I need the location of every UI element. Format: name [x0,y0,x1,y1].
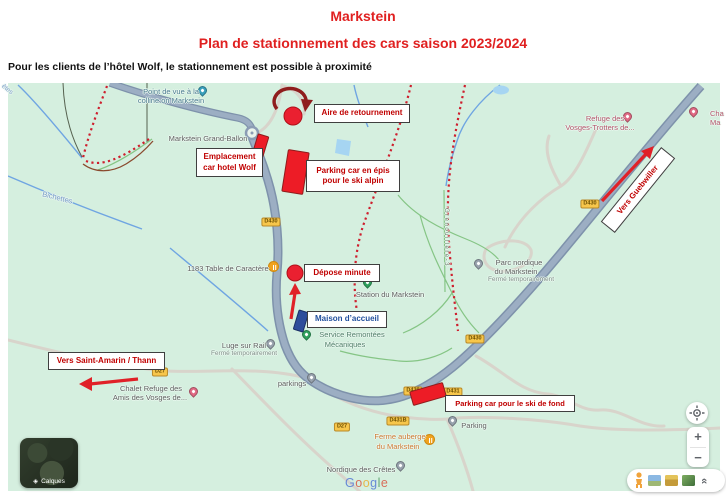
poi-label-chalet-refuge[interactable]: Chalet Refuge des [120,384,182,393]
road-badge-d430: D430 [261,218,280,227]
my-location-button[interactable] [686,402,708,424]
poi-label-refuge-vosges[interactable]: Vosges-Trotters de... [565,123,634,132]
google-watermark: Google [345,476,388,490]
annotation-parking-ski-fond: Parking car pour le ski de fond [445,395,575,412]
poi-label-nordique-cretes[interactable]: Nordique des Crêtes [327,465,396,474]
restaurant-pin-icon[interactable] [268,261,279,272]
poi-label-ferme-auberge[interactable]: Ferme auberge [374,432,425,441]
annotation-parking-epis: Parking car en épis pour le ski alpin [306,160,400,192]
area-label-parkings: parkings [278,379,306,388]
collapse-chevron-icon[interactable]: « [698,477,710,483]
page-title: Markstein [0,8,726,24]
road-badge-d431b: D431B [386,417,409,426]
poi-label-remontees[interactable]: Service Remontées [319,330,384,339]
lift-label-grenouillere: Grenouillère-3 [443,208,449,267]
photo-thumbnail[interactable] [665,475,678,486]
annotation-maison-accueil: Maison d’accueil [307,311,387,328]
poi-label-chalet-edge[interactable]: Cha [710,109,724,118]
annotation-aire-de-retournement: Aire de retournement [314,104,410,123]
layers-icon: ◈ [33,477,38,485]
pond [493,86,509,95]
zoom-control: + − [687,427,709,467]
poi-label-point-de-vue[interactable]: colline on Markstein [138,96,204,105]
poi-label-station-du-markstein[interactable]: Station du Markstein [356,290,424,299]
poi-label-parc-nordique[interactable]: du Markstein [495,267,538,276]
ferme-auberge-pin-icon[interactable] [424,434,435,445]
poi-label-chalet-refuge[interactable]: Amis des Vosges de... [113,393,187,402]
poi-label-parking[interactable]: Parking [461,421,486,430]
poi-label-table-de-caractere[interactable]: 1183 Table de Caractère [187,264,268,273]
roundabout [246,127,258,139]
pegman-icon[interactable] [634,472,644,489]
annotation-emplacement-hotel-wolf: Emplacement car hotel Wolf [196,148,263,177]
road-badge-d430: D430 [403,387,422,396]
road-badge-d430: D430 [580,200,599,209]
map-vector-layer [8,83,720,491]
photo-thumbnail[interactable] [648,475,661,486]
page-subtitle: Plan de stationnement des cars saison 20… [0,35,726,51]
poi-label-chalet-edge[interactable]: Ma [710,118,720,127]
poi-status-parc-nordique: Fermé temporairement [488,276,554,283]
poi-label-remontees[interactable]: Mécaniques [325,340,365,349]
streetview-photos-bar: « [627,469,725,492]
annotation-vers-saint-amarin: Vers Saint-Amarin / Thann [48,352,165,370]
poi-label-point-de-vue[interactable]: Point de vue à la [143,87,199,96]
road-badge-d430: D430 [465,335,484,344]
road-label-grand-ballon: Markstein Grand-Ballon [169,134,248,143]
note-text: Pour les clients de l’hôtel Wolf, le sta… [8,61,372,73]
poi-label-luge[interactable]: Luge sur Rail [222,341,266,350]
minor-roads [8,85,720,491]
lake [335,139,351,156]
photo-thumbnail[interactable] [682,475,695,486]
layers-label: Calques [41,478,65,485]
layers-button[interactable]: ◈ Calques [20,438,78,488]
zoom-in-button[interactable]: + [687,427,709,447]
poi-label-ferme-auberge[interactable]: du Markstein [377,442,420,451]
road-badge-d27: D27 [334,423,350,432]
annotation-depose-minute: Dépose minute [304,264,380,282]
zoom-out-button[interactable]: − [687,448,709,468]
page: Markstein Plan de stationnement des cars… [0,0,726,497]
my-location-icon [689,405,705,421]
poi-status-luge: Fermé temporairement [211,350,277,357]
streams [8,85,500,331]
poi-label-parc-nordique[interactable]: Parc nordique [496,258,543,267]
poi-label-refuge-vosges[interactable]: Refuge des [586,114,624,123]
trails [98,139,501,361]
